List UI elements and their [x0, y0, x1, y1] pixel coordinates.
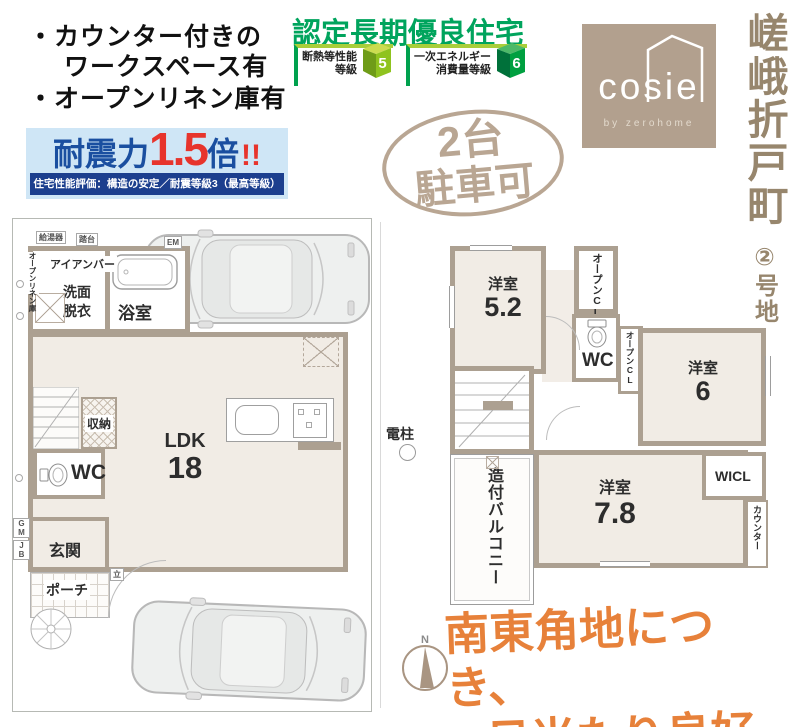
washroom-line1: 洗面 [63, 284, 91, 300]
open-linen-label: オープンリネン庫 [25, 252, 39, 294]
utility-pole-icon [399, 444, 416, 461]
stove-icon [293, 403, 327, 438]
road-edge-line [380, 222, 381, 708]
vent-mark [486, 456, 499, 469]
kitchen-wall-stub [298, 442, 341, 450]
feature-bullet-1: ・カウンター付きの ワークスペース有 [28, 22, 268, 82]
wc-label-1f: WC [71, 461, 106, 485]
balcony-label: 造付バルコニー [481, 467, 505, 586]
counter-nook: カウンター [746, 500, 768, 568]
bedroom-7-8-label: 洋室 7.8 [571, 481, 659, 529]
wc-label-2f: WC [582, 350, 614, 372]
washer-space-icon [35, 293, 65, 323]
seismic-note: 住宅性能評価：構造の安定／耐震等級3（最高等級） [30, 173, 284, 195]
compass-north-label: N [421, 634, 429, 646]
parking-line2: 駐車可 [413, 158, 537, 214]
badge1-line1: 断熱等性能 [302, 51, 357, 63]
garden-mark [16, 312, 24, 320]
parking-capacity-stamp: 2台 駐車可 [378, 102, 569, 223]
garden-mark [15, 474, 23, 482]
door-arc [546, 406, 580, 440]
window [449, 286, 455, 328]
room1-label: 洋室 [473, 277, 533, 293]
sales-tagline: 南東角地につき、 日当たり良好 [443, 596, 800, 727]
feature-bullet-1-line2: ワークスペース有 [28, 52, 268, 82]
kitchen-counter [226, 398, 334, 442]
floor2-plan: 洋室 5.2 オープンCL WC オープンCL 洋室 6 [450, 246, 770, 608]
toilet-icon [39, 460, 69, 488]
void-hatch [303, 337, 339, 367]
seismic-value: 1.5 [149, 126, 207, 172]
cert-badge-energy-label: 一次エネルギー 消費量等級 [414, 51, 491, 77]
cert-badge-insulation: 断熱等性能 等級 5 [294, 44, 393, 86]
open-closet-1-label: オープンCL [590, 253, 605, 319]
brand-logo: cosie by zerohome [582, 24, 716, 148]
iron-bar-label: アイアンバー [48, 256, 117, 272]
window [600, 561, 650, 567]
tagline-line1: 南東角地につき、 [443, 596, 800, 716]
garden-mark [16, 280, 24, 288]
bath-label: 浴室 [118, 299, 152, 324]
storage-label: 収納 [85, 415, 113, 432]
main-body-1f: 収納 WC 玄関 LDK 18 [28, 332, 348, 572]
window [470, 245, 512, 251]
cert-badge-insulation-label: 断熱等性能 等級 [302, 51, 357, 77]
kitchen-sink-icon [235, 405, 279, 435]
room3-label: 洋室 [571, 481, 659, 498]
entrance-label: 玄関 [49, 537, 81, 561]
stairwell-2f [450, 366, 534, 454]
grade-cube-value: 6 [512, 55, 520, 72]
room2-label: 洋室 [673, 361, 733, 377]
washroom-label: 洗面 脱衣 [63, 283, 91, 321]
balcony: 造付バルコニー [450, 454, 534, 605]
washroom-line2: 脱衣 [63, 303, 91, 319]
stairs-icon [455, 371, 529, 449]
seismic-bang: !! [241, 141, 261, 171]
ldk-size: 18 [155, 452, 215, 485]
bedroom-6-label: 洋室 6 [673, 361, 733, 405]
seismic-prefix: 耐震力 [53, 138, 149, 170]
entrance-room: 玄関 [33, 517, 109, 567]
bathtub-icon [112, 254, 178, 290]
room2-size: 6 [673, 377, 733, 405]
step-stool-label: 踏台 [76, 233, 98, 246]
wc-room-1f: WC [33, 449, 105, 499]
grade-cube-value: 5 [378, 55, 386, 72]
faucet-label: 立 [110, 568, 124, 581]
badge2-line2: 消費量等級 [436, 64, 491, 76]
open-closet-2-label: オープンCL [624, 331, 636, 385]
seismic-unit: 倍 [207, 138, 239, 170]
room1-size: 5.2 [473, 293, 533, 321]
ldk-label: LDK [155, 431, 215, 452]
em-meter-label: EM [164, 236, 182, 249]
brand-wordmark: cosie [582, 66, 716, 108]
bedroom-6: 洋室 6 [638, 328, 766, 446]
seismic-headline: 耐震力1.5倍!! [53, 126, 261, 172]
bedroom-5-2-label: 洋室 5.2 [473, 277, 533, 321]
jb-marker: JB [13, 540, 30, 560]
window [765, 356, 771, 396]
porch-label: ポーチ [44, 580, 90, 600]
flyer-root: ・カウンター付きの ワークスペース有 ・オープンリネン庫有 耐震力1.5倍!! … [0, 0, 800, 727]
badge2-line1: 一次エネルギー [414, 51, 491, 63]
grade-cube-icon: 6 [493, 41, 527, 81]
cert-badge-energy: 一次エネルギー 消費量等級 6 [406, 44, 527, 86]
gm-marker: GM [13, 518, 30, 538]
grade-cube-icon: 5 [359, 41, 393, 81]
open-closet-1: オープンCL [574, 246, 618, 314]
floor1-plan: 給湯器 踏台 EM 浴室 洗面 脱衣 アイアンバー オープンリネン庫 [12, 218, 372, 712]
counter-label: カウンター [751, 505, 764, 550]
parking-line1: 2台 [435, 114, 506, 166]
room3-size: 7.8 [571, 498, 659, 530]
ldk-label-block: LDK 18 [155, 431, 215, 485]
water-heater-label: 給湯器 [36, 231, 66, 244]
wicl-label: WICL [715, 468, 751, 484]
stairs-icon [33, 387, 79, 449]
bedroom-5-2: 洋室 5.2 [450, 246, 546, 374]
seismic-badge: 耐震力1.5倍!! 住宅性能評価：構造の安定／耐震等級3（最高等級） [26, 128, 288, 199]
wicl-closet: WICL [702, 452, 766, 500]
utility-pole-label: 電柱 [386, 424, 414, 444]
brand-tagline: by zerohome [582, 118, 716, 129]
feature-bullet-1-line1: ・カウンター付きの [28, 23, 262, 51]
tree-icon [28, 606, 74, 652]
storage-closet: 収納 [81, 397, 117, 449]
property-name: 嵯峨折戸町 [734, 12, 794, 227]
badge1-line2: 等級 [335, 64, 357, 76]
toilet-icon [584, 319, 610, 349]
feature-bullet-2: ・オープンリネン庫有 [28, 84, 287, 114]
